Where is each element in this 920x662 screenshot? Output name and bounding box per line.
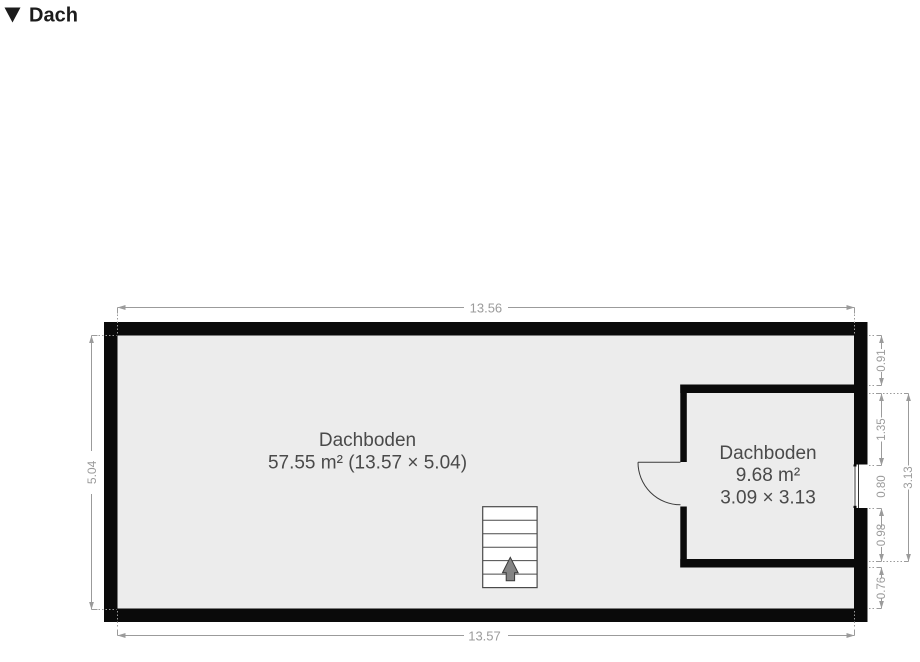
svg-text:9.68 m²: 9.68 m² (736, 465, 800, 486)
svg-text:13.56: 13.56 (470, 300, 503, 315)
svg-text:0.80: 0.80 (876, 475, 888, 497)
svg-text:0.91: 0.91 (876, 349, 888, 371)
svg-text:Dach: Dach (29, 5, 78, 27)
svg-text:0.76: 0.76 (876, 577, 888, 599)
svg-text:5.04: 5.04 (85, 460, 99, 484)
svg-text:1.35: 1.35 (876, 418, 888, 440)
svg-text:Dachboden: Dachboden (719, 443, 816, 464)
svg-text:3.13: 3.13 (903, 466, 915, 488)
svg-text:13.57: 13.57 (468, 628, 501, 643)
svg-text:3.09 × 3.13: 3.09 × 3.13 (720, 487, 816, 508)
svg-text:57.55 m² (13.57 × 5.04): 57.55 m² (13.57 × 5.04) (268, 452, 467, 473)
svg-text:0.98: 0.98 (876, 524, 888, 546)
svg-text:Dachboden: Dachboden (319, 430, 416, 451)
